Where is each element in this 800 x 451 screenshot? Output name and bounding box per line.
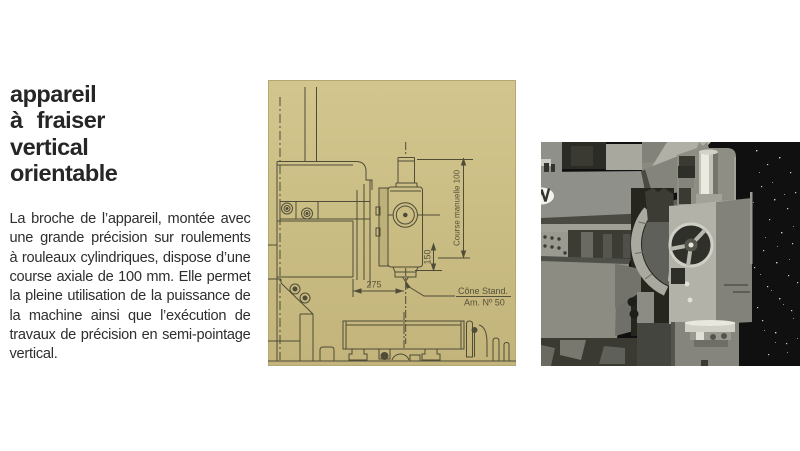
svg-text:Am. Nº 50: Am. Nº 50 bbox=[464, 298, 505, 308]
svg-text:150: 150 bbox=[423, 249, 433, 264]
svg-text:Course manuelle 100: Course manuelle 100 bbox=[453, 169, 462, 246]
svg-text:275: 275 bbox=[366, 280, 381, 290]
svg-text:Cône Stand.: Cône Stand. bbox=[458, 286, 508, 296]
